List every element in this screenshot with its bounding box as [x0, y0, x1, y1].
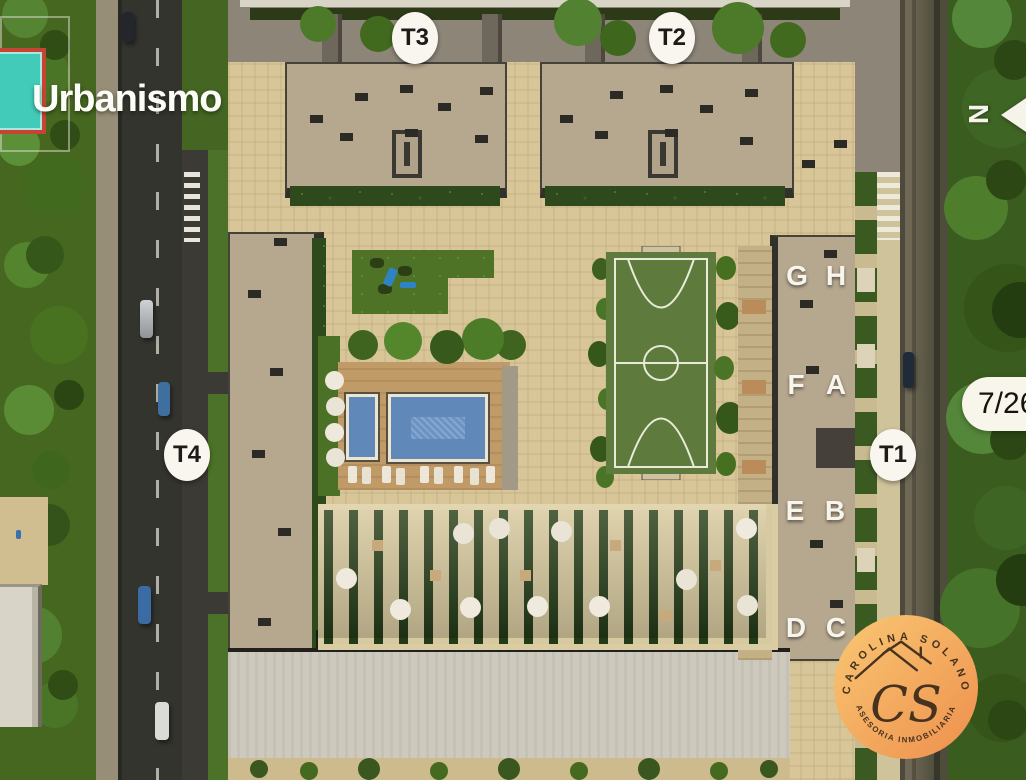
dining-tables	[372, 540, 383, 551]
page-indicator: 7/26	[962, 377, 1026, 431]
sidewalk-connectors	[857, 268, 875, 292]
neighbor-patio	[0, 497, 48, 585]
unit-label-a: A	[826, 369, 846, 401]
north-arrow-icon	[1001, 96, 1026, 134]
crosswalk-left	[184, 172, 200, 242]
person-figure	[16, 530, 21, 539]
field-planting	[716, 256, 736, 280]
t1-entrance-block	[816, 428, 858, 468]
tower-badge-t1: T1	[870, 429, 916, 481]
swimming-pool	[388, 394, 488, 462]
south-building-roof	[228, 648, 790, 762]
kids-pool	[346, 394, 378, 460]
right-ground-strip	[855, 0, 900, 172]
rooftop-ac-units	[560, 115, 573, 123]
pool-wall	[502, 366, 518, 490]
futsal-field	[606, 246, 716, 480]
logo-initials: CS	[870, 676, 942, 734]
car	[155, 702, 169, 740]
gym-equipment-shadow	[370, 258, 384, 268]
hedge-strip	[545, 186, 785, 206]
tower-core	[585, 14, 605, 62]
neighbor-building-roof	[0, 584, 42, 727]
pool-umbrellas	[325, 371, 344, 390]
unit-label-g: G	[786, 260, 808, 292]
unit-label-f: F	[787, 369, 804, 401]
logo-badge: CAROLINA SOLANO ASESORIA INMOBILIARIA CS	[832, 613, 980, 761]
pool-side-grass	[318, 336, 340, 496]
tree-cluster	[994, 40, 1026, 80]
north-wall-edge	[240, 0, 850, 7]
tower-core	[742, 14, 762, 62]
t3-stair-core	[392, 130, 422, 178]
tree-cluster	[300, 6, 336, 42]
walkway-planters	[742, 300, 766, 314]
car	[138, 586, 151, 624]
tree-cluster	[250, 760, 268, 778]
entry-path	[208, 592, 230, 614]
t2-stair-core	[648, 130, 678, 178]
verge-top-grass	[182, 0, 230, 150]
car	[158, 382, 170, 416]
dining-umbrellas	[336, 568, 357, 589]
tree-cluster	[348, 330, 378, 360]
outdoor-gym-lawn	[448, 250, 494, 278]
page-indicator-text: 7/26	[978, 387, 1026, 421]
south-hedge-row	[228, 758, 790, 780]
unit-label-b: B	[825, 495, 845, 527]
rooftop-ac-units	[800, 300, 813, 308]
car	[903, 352, 914, 388]
pergola-lighting	[318, 504, 766, 638]
unit-label-h: H	[826, 260, 846, 292]
hedge-strip	[290, 186, 500, 206]
tower-core	[482, 14, 502, 62]
car	[140, 300, 153, 338]
tower-badge-t2: T2	[649, 12, 695, 64]
page-title: Urbanismo	[32, 78, 221, 121]
unit-label-e: E	[786, 495, 805, 527]
grass-verge	[208, 150, 230, 780]
site-plan-render: Urbanismo T3 T2 T4 T1 G H F A E B D C N …	[0, 0, 1026, 780]
car	[122, 12, 134, 42]
tower-t4-building	[228, 232, 324, 660]
rooftop-ac-units	[248, 290, 261, 298]
north-label: N	[963, 104, 995, 124]
tower-badge-t3: T3	[392, 12, 438, 64]
north-indicator: N	[955, 92, 1026, 144]
unit-label-d: D	[786, 612, 806, 644]
sun-loungers	[348, 466, 357, 483]
gym-equipment	[400, 282, 416, 288]
tower-badge-t4: T4	[164, 429, 210, 481]
rooftop-ac-units	[310, 115, 323, 123]
crosswalk-right	[877, 172, 900, 240]
entry-path	[208, 372, 230, 394]
